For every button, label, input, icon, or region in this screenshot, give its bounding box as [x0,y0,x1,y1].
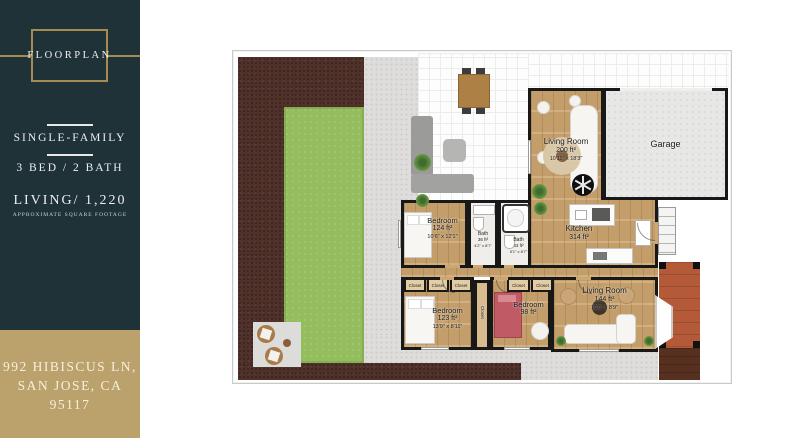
room-kitchen: Kitchen 314 ft² [531,200,658,268]
door-opening [576,277,591,280]
plant-icon [534,202,547,215]
window [504,347,530,350]
plant-icon [416,194,429,207]
outdoor-sofa-icon [411,174,474,193]
front-door-opening [655,222,658,244]
sidebar: FLOORPLAN SINGLE-FAMILY 3 BED / 2 BATH L… [0,0,140,438]
plant-icon [556,336,566,346]
room-garage: Garage [603,88,728,200]
porch-post [693,262,700,269]
hallway [401,268,658,277]
outdoor-chair-icon [265,347,283,365]
outdoor-chair-icon [257,325,275,343]
closet: Closet [404,278,426,292]
address-block: 992 HIBISCUS LN, SAN JOSE, CA 95117 [0,330,140,438]
room-bath-36: Bath 36 ft² 4'2" x 8'7" [468,200,498,268]
floorplan-badge: FLOORPLAN [31,29,108,82]
bathtub-icon [502,204,530,233]
room-living-144: Living Room 144 ft² 16'6" x 8'9" [551,277,658,352]
living-area-caption: APPROXIMATE SQUARE FOOTAGE [0,212,140,218]
pouf-icon [537,101,550,114]
room-label: Bedroom 124 ft² 10'6" x 12'1" [412,216,473,241]
address-line2: SAN JOSE, CA 95117 [0,376,140,414]
door-opening [445,265,460,268]
room-label: Bath 43 ft² 5'1" x 8'7" [505,237,532,254]
door-opening [504,265,514,268]
ottoman-icon [443,139,466,162]
room-label: Bedroom 98 ft² [501,300,556,318]
room-label: Garage [606,139,725,150]
porch-pad [659,348,700,380]
divider [47,124,93,126]
beds-baths: 3 BED / 2 BATH [0,162,140,174]
patio-door [528,140,531,174]
closet-column: Closet [474,280,490,350]
garage-door [620,88,712,91]
kitchen-island-icon [569,204,615,226]
plant-icon [532,184,547,199]
window [579,349,619,352]
door-opening [440,277,454,280]
room-bath-43: Bath 43 ft² 5'1" x 8'7" [498,200,531,268]
room-label: Bedroom 123 ft² 13'9" x 8'11" [414,306,481,331]
sofa-chaise-icon [616,314,636,344]
closet-label: Closet [477,305,487,325]
floorplan-canvas: Living Room 200 ft² 10'11" x 18'3" Garag… [226,44,736,386]
closet: Closet [507,278,530,292]
side-table-icon [283,339,291,347]
room-bedroom-124: Bedroom 124 ft² 10'6" x 12'1" [401,200,468,268]
floorplan-badge-label: FLOORPLAN [27,50,111,61]
address-line1: 992 HIBISCUS LN, [0,357,140,376]
room-label: Kitchen 314 ft² [517,224,641,243]
floorplan-flyer: FLOORPLAN SINGLE-FAMILY 3 BED / 2 BATH L… [0,0,800,438]
vanity-icon [473,205,495,215]
room-label: Living Room 144 ft² 16'6" x 8'9" [554,286,655,312]
kitchen-counter-icon [586,248,633,264]
porch-post [659,262,666,269]
chair-icon [531,322,549,340]
door-opening [494,277,508,280]
entry-steps [658,207,676,255]
living-area: LIVING/ 1,220 [0,193,140,209]
porch-post [693,341,700,348]
door-opening [473,265,483,268]
room-label: Living Room 200 ft² 10'11" x 18'3" [531,137,601,163]
window [421,347,449,350]
window [398,220,401,248]
property-type: SINGLE-FAMILY [0,132,140,144]
toilet-icon [473,217,484,231]
outdoor-table-icon [458,74,490,108]
divider [47,154,93,156]
room-label: Bath 36 ft² 4'2" x 8'7" [471,231,495,248]
plant-icon [414,154,431,171]
ceiling-fan-icon [572,174,594,196]
plant-icon [644,336,654,346]
patio-pad [253,322,301,367]
